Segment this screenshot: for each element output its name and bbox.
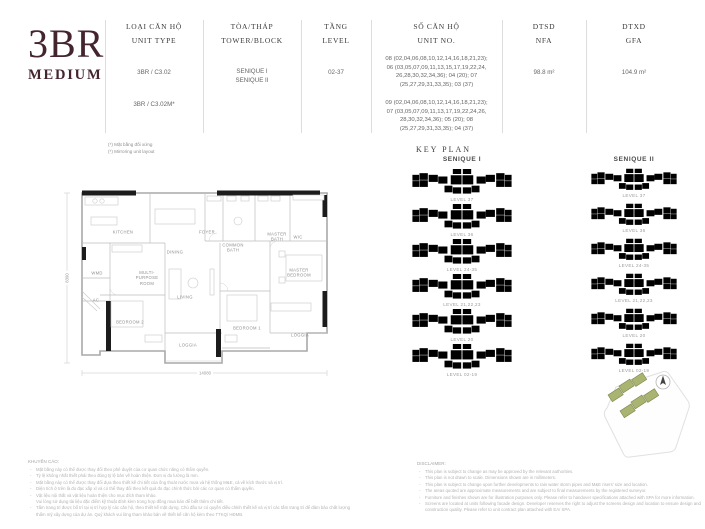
room-label-master-bedroom: MASTER BEDROOM	[287, 268, 311, 279]
room-label-foyer: FOYER	[199, 229, 215, 234]
unit-type-header-en: UNIT TYPE	[105, 36, 203, 45]
key-plan-block: LEVEL 36	[591, 203, 677, 238]
level-label: LEVEL 37	[623, 193, 646, 198]
tower-value: SENIQUE I SENIQUE II	[203, 67, 301, 86]
spec-col-gfa: DTXD GFA 104.9 m²	[586, 22, 682, 140]
site-boundary	[604, 371, 689, 457]
dimension-height: 8390	[65, 271, 70, 285]
key-plan-title: KEY PLAN	[416, 145, 471, 154]
room-label-ac: AC	[93, 297, 99, 302]
disclaimer-line: Screens are located at units following f…	[417, 501, 703, 514]
nfa-header-en: NFA	[502, 36, 586, 45]
key-plan-block: LEVEL 20	[591, 308, 677, 343]
room-label-loggia-right: LOGGIA	[291, 332, 309, 337]
floor-plan-drawing	[55, 183, 345, 391]
room-label-bedroom1: BEDROOM 1	[233, 325, 261, 330]
spec-col-unit-type: LOẠI CĂN HỘ UNIT TYPE 3BR / C3.02 3BR / …	[105, 22, 203, 140]
level-header-en: LEVEL	[301, 36, 371, 45]
disclaimer-line: Vật liệu nội thất và vật liệu hoàn thiện…	[28, 493, 358, 506]
level-label: LEVEL 21,22,23	[615, 298, 653, 303]
floor-plate-diagram	[412, 308, 512, 335]
floor-plate-diagram	[591, 203, 677, 226]
level-label: LEVEL 24-35	[619, 263, 649, 268]
key-plan-block: LEVEL 24-35	[591, 238, 677, 273]
site-plan	[596, 365, 705, 467]
level-label: LEVEL 02-19	[447, 372, 477, 377]
gfa-header-vi: DTXD	[586, 22, 682, 31]
footer-disclaimer-en: DISCLAIMER: This plan is subject to chan…	[417, 461, 703, 514]
unit-no-header-en: UNIT NO.	[371, 36, 502, 45]
level-header-vi: TẦNG	[301, 22, 371, 31]
gfa-header-en: GFA	[586, 36, 682, 45]
floor-plate-diagram	[591, 168, 677, 191]
mirroring-footnote: (*) Mặt bằng đối xứng (*) Mirroring unit…	[108, 141, 154, 155]
spec-col-nfa: DTSD NFA 98.8 m²	[502, 22, 586, 140]
level-label: LEVEL 36	[451, 232, 474, 237]
room-label-wmd: WMD	[91, 270, 102, 275]
level-label: LEVEL 21,22,23	[443, 302, 481, 307]
level-label: LEVEL 20	[623, 333, 646, 338]
floor-plate-diagram	[591, 308, 677, 331]
footer-disclaimer-vi: KHUYẾN CÁO: Mặt bằng này có thể được tha…	[28, 459, 358, 518]
nfa-header-vi: DTSD	[502, 22, 586, 31]
key-plan-block: LEVEL 20	[412, 308, 512, 343]
disclaimer-line: Tấm trang trí được bố trí tại vị trí hợp…	[28, 505, 358, 518]
footnote-vi: (*) Mặt bằng đối xứng	[108, 141, 154, 148]
footer-en-title: DISCLAIMER:	[417, 461, 703, 468]
room-label-bedroom2: BEDROOM 2	[116, 319, 144, 324]
floor-plan: KITCHEN DINING FOYER COMMON BATH MASTER …	[55, 183, 345, 391]
key-plan-block: LEVEL 24-35	[412, 238, 512, 273]
tower-header-en: TOWER/BLOCK	[203, 36, 301, 45]
gfa-value: 104.9 m²	[586, 68, 682, 77]
unit-no-value-1: 08 (02,04,06,08,10,12,14,16,18,21,23); 0…	[371, 55, 502, 89]
floor-plate-diagram	[412, 343, 512, 370]
level-value: 02-37	[301, 68, 371, 77]
unit-type-header-vi: LOẠI CĂN HỘ	[105, 22, 203, 31]
floor-plate-diagram	[591, 273, 677, 296]
spec-col-level: TẦNG LEVEL 02-37	[301, 22, 371, 140]
floor-plate-diagram	[412, 203, 512, 230]
tower-heading-senique-2: SENIQUE II	[614, 156, 655, 163]
footnote-en: (*) Mirroring unit layout	[108, 148, 154, 155]
floor-plate-diagram	[591, 343, 677, 366]
level-label: LEVEL 36	[623, 228, 646, 233]
tower-heading-senique-1: SENIQUE I	[443, 156, 481, 163]
key-plan-senique-1: SENIQUE I LEVEL 37 LEVEL 36 LEVEL 24-35 …	[403, 156, 521, 378]
level-label: LEVEL 37	[451, 197, 474, 202]
room-label-common-bath: COMMON BATH	[222, 243, 243, 254]
unit-type-value-1: 3BR / C3.02	[105, 68, 203, 77]
title-3br: 3BR	[28, 24, 104, 64]
room-label-multi-purpose: MULTI- PURPOSE ROOM	[136, 270, 159, 286]
key-plan-block: LEVEL 21,22,23	[412, 273, 512, 308]
room-label-living: LIVING	[177, 294, 193, 299]
footer-vi-title: KHUYẾN CÁO:	[28, 459, 358, 466]
room-label-master-bath: MASTER BATH	[267, 232, 286, 243]
title-medium: MEDIUM	[28, 67, 104, 84]
level-label: LEVEL 20	[451, 337, 474, 342]
unit-type-value-2: 3BR / C3.02M*	[105, 100, 203, 109]
key-plan-senique-2: SENIQUE II LEVEL 37 LEVEL 36 LEVEL 24-35…	[586, 156, 682, 378]
unit-no-header-vi: SỐ CĂN HỘ	[371, 22, 502, 31]
nfa-value: 98.8 m²	[502, 68, 586, 77]
unit-no-value-2: 09 (02,04,06,08,10,12,14,16,18,21,23); 0…	[371, 99, 502, 133]
key-plan-block: LEVEL 37	[412, 168, 512, 203]
key-plan-block: LEVEL 21,22,23	[591, 273, 677, 308]
unit-type-title: 3BR MEDIUM	[28, 24, 104, 84]
room-label-kitchen: KITCHEN	[113, 229, 133, 234]
room-label-loggia-center: LOGGIA	[179, 342, 197, 347]
floor-plate-diagram	[412, 273, 512, 300]
key-plan-block: LEVEL 02-19	[412, 343, 512, 378]
floor-plate-diagram	[591, 238, 677, 261]
dimension-width: 14080	[197, 371, 213, 376]
key-plan-block: LEVEL 36	[412, 203, 512, 238]
room-label-dining: DINING	[167, 249, 183, 254]
tower-header-vi: TÒA/THÁP	[203, 22, 301, 31]
spec-col-unit-no: SỐ CĂN HỘ UNIT NO. 08 (02,04,06,08,10,12…	[371, 22, 502, 140]
north-compass-icon	[656, 375, 670, 389]
room-label-wic: WIC	[293, 234, 302, 239]
floor-plate-diagram	[412, 168, 512, 195]
brochure-page: 3BR MEDIUM LOẠI CĂN HỘ UNIT TYPE 3BR / C…	[0, 0, 705, 529]
key-plan-block: LEVEL 37	[591, 168, 677, 203]
level-label: LEVEL 24-35	[447, 267, 477, 272]
spec-col-tower: TÒA/THÁP TOWER/BLOCK SENIQUE I SENIQUE I…	[203, 22, 301, 140]
floor-plate-diagram	[412, 238, 512, 265]
